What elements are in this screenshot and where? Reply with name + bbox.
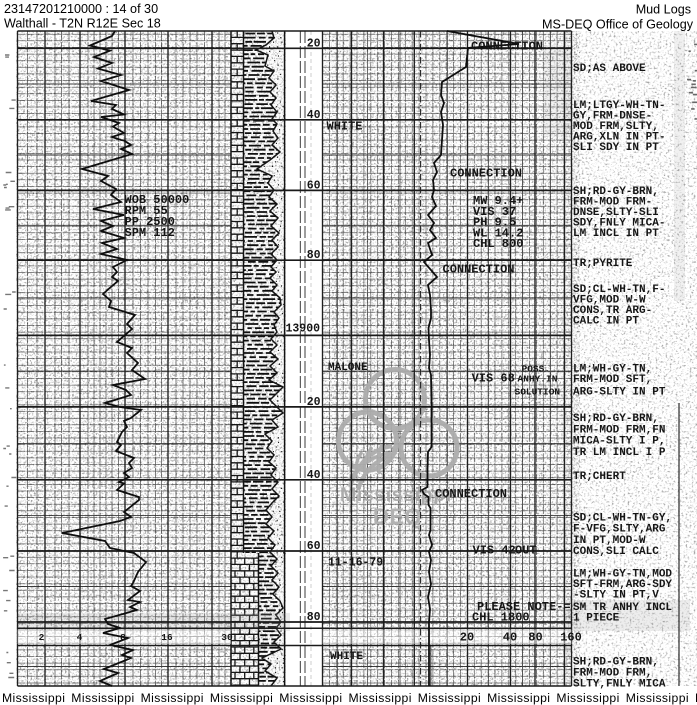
svg-text:VIS 68: VIS 68	[472, 372, 515, 386]
svg-text:Mississippi: Mississippi	[349, 691, 412, 705]
svg-text:30: 30	[221, 632, 233, 643]
svg-text:TR;PYRITE: TR;PYRITE	[573, 258, 633, 270]
svg-text:CONNECTION: CONNECTION	[443, 263, 515, 277]
svg-text:Mississippi: Mississippi	[418, 691, 481, 705]
svg-text:60: 60	[307, 540, 321, 553]
svg-text:F-VFG,SLTY,ARG: F-VFG,SLTY,ARG	[573, 524, 666, 536]
svg-text:Mississippi: Mississippi	[141, 691, 204, 705]
svg-text:160: 160	[560, 631, 582, 645]
svg-text:20: 20	[307, 37, 321, 50]
svg-text:1 PIECE: 1 PIECE	[573, 613, 620, 625]
svg-text:Mississippi: Mississippi	[626, 691, 689, 705]
svg-text:Mississippi: Mississippi	[487, 691, 550, 705]
svg-text:13900: 13900	[286, 323, 321, 336]
svg-text:MS-DEQ Office of Geology: MS-DEQ Office of Geology	[542, 18, 694, 32]
svg-text:MALONE: MALONE	[328, 362, 368, 374]
svg-text:8: 8	[120, 632, 126, 643]
svg-text:VIS 42: VIS 42	[473, 544, 516, 558]
svg-text:Mississippi: Mississippi	[210, 691, 273, 705]
svg-text:WHITE: WHITE	[330, 651, 363, 663]
svg-text:40: 40	[307, 109, 321, 122]
svg-text:2: 2	[39, 632, 45, 643]
svg-text:40: 40	[307, 469, 321, 482]
svg-text:ANHY.IN: ANHY.IN	[518, 374, 558, 385]
svg-text:20: 20	[307, 396, 321, 409]
svg-text:FRM-MOD FRM,FN: FRM-MOD FRM,FN	[573, 424, 665, 436]
svg-text:Mud Logs: Mud Logs	[636, 3, 691, 17]
svg-text:TR;CHERT: TR;CHERT	[573, 471, 626, 483]
svg-text:Mississippi: Mississippi	[279, 691, 342, 705]
svg-text:80: 80	[307, 611, 321, 624]
svg-text:CHL 1800: CHL 1800	[472, 611, 530, 625]
svg-text:Walthall - T2N R12E Sec 18: Walthall - T2N R12E Sec 18	[4, 17, 161, 31]
svg-text:CHL 800: CHL 800	[473, 237, 523, 251]
svg-text:CONNECTION: CONNECTION	[450, 167, 522, 181]
svg-text:FRM-MOD SFT,: FRM-MOD SFT,	[573, 374, 652, 386]
svg-text:4: 4	[77, 632, 83, 643]
svg-text:MICA-SLTY I P,: MICA-SLTY I P,	[573, 436, 665, 448]
svg-text:20: 20	[460, 631, 474, 645]
svg-text:SH;RD-GY-BRN,: SH;RD-GY-BRN,	[573, 413, 659, 425]
svg-text:Mississippi: Mississippi	[71, 691, 134, 705]
svg-text:CONNECTION: CONNECTION	[471, 40, 543, 54]
svg-text:CONS,SLI CALC: CONS,SLI CALC	[573, 546, 659, 558]
svg-text:WHITE: WHITE	[327, 120, 363, 134]
svg-text:SLI SDY IN PT: SLI SDY IN PT	[573, 142, 659, 154]
svg-text:OUT: OUT	[515, 544, 537, 558]
svg-text:IN PT,MOD-W: IN PT,MOD-W	[573, 535, 646, 547]
svg-text:23147201210000 : 14 of 30: 23147201210000 : 14 of 30	[4, 2, 158, 16]
svg-text:80: 80	[307, 249, 321, 262]
svg-text:-SLTY IN PT,V: -SLTY IN PT,V	[573, 590, 659, 602]
svg-text:SPM 112: SPM 112	[125, 226, 175, 240]
svg-text:SD;AS ABOVE: SD;AS ABOVE	[573, 63, 646, 75]
svg-text:TR LM INCL I P: TR LM INCL I P	[573, 447, 666, 459]
svg-text:11-16-79: 11-16-79	[328, 557, 383, 570]
svg-text:SLTY,FNLY MICA: SLTY,FNLY MICA	[573, 679, 666, 691]
svg-text:Mississippi: Mississippi	[2, 691, 65, 705]
svg-text:CALC IN PT: CALC IN PT	[573, 316, 639, 328]
svg-text:LM INCL IN PT: LM INCL IN PT	[573, 228, 659, 240]
svg-text:80: 80	[528, 631, 542, 645]
svg-text:Mississippi: Mississippi	[556, 691, 619, 705]
svg-text:SD;CL-WH-TN-GY,: SD;CL-WH-TN-GY,	[573, 513, 672, 525]
svg-text:40: 40	[503, 631, 517, 645]
svg-text:16: 16	[161, 632, 173, 643]
svg-text:60: 60	[307, 179, 321, 192]
svg-text:SOLUTION: SOLUTION	[515, 387, 561, 398]
svg-text:CONNECTION: CONNECTION	[435, 487, 507, 501]
svg-text:ARG-SLTY IN PT: ARG-SLTY IN PT	[573, 387, 666, 399]
